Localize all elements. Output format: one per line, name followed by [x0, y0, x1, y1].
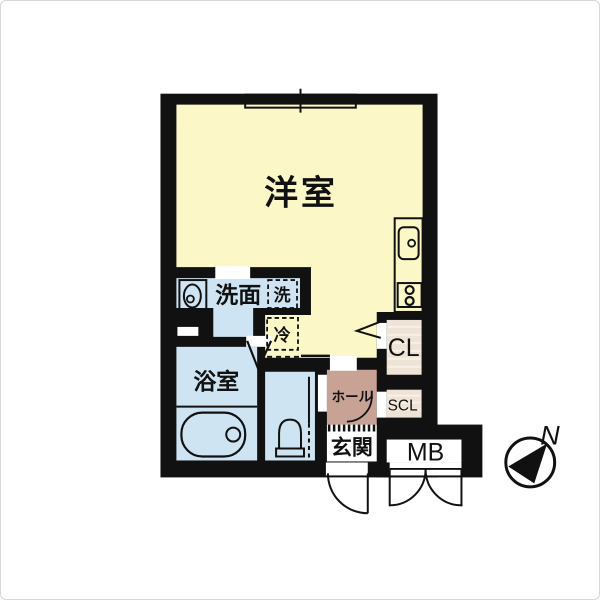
entrance-door-icon — [328, 473, 368, 513]
opening-shoe-closet — [377, 392, 387, 418]
wall-niche — [177, 327, 198, 336]
label-fridge: 冷 — [274, 325, 291, 345]
label-washer: 洗 — [274, 285, 291, 305]
opening-room-washroom — [215, 266, 250, 279]
label-shoe-closet: SCL — [388, 398, 418, 415]
compass-north-icon: N — [506, 421, 560, 487]
label-meter-box: MB — [407, 438, 444, 466]
toilet-room-area — [265, 372, 315, 461]
label-closet: CL — [388, 334, 420, 362]
room-label-entrance: 玄関 — [331, 435, 373, 459]
room-label-bathroom: 浴室 — [193, 369, 239, 395]
floorplan-canvas: 洋室 洗面 洗 冷 浴室 ホール 玄関 CL SCL MB N — [0, 0, 600, 600]
bathroom-area — [176, 347, 257, 461]
opening-entrance-door — [326, 462, 368, 475]
opening-toilet-hall — [318, 375, 327, 412]
kitchen-boundary-line — [267, 356, 330, 357]
room-label-western-room: 洋室 — [264, 173, 338, 212]
room-label-hall: ホール — [332, 390, 373, 405]
opening-room-hall — [330, 356, 357, 371]
room-label-washroom: 洗面 — [215, 282, 261, 308]
floorplan-svg: 洋室 洗面 洗 冷 浴室 ホール 玄関 CL SCL MB N — [1, 1, 599, 599]
compass-north-label: N — [540, 421, 560, 451]
opening-closet — [377, 323, 387, 349]
